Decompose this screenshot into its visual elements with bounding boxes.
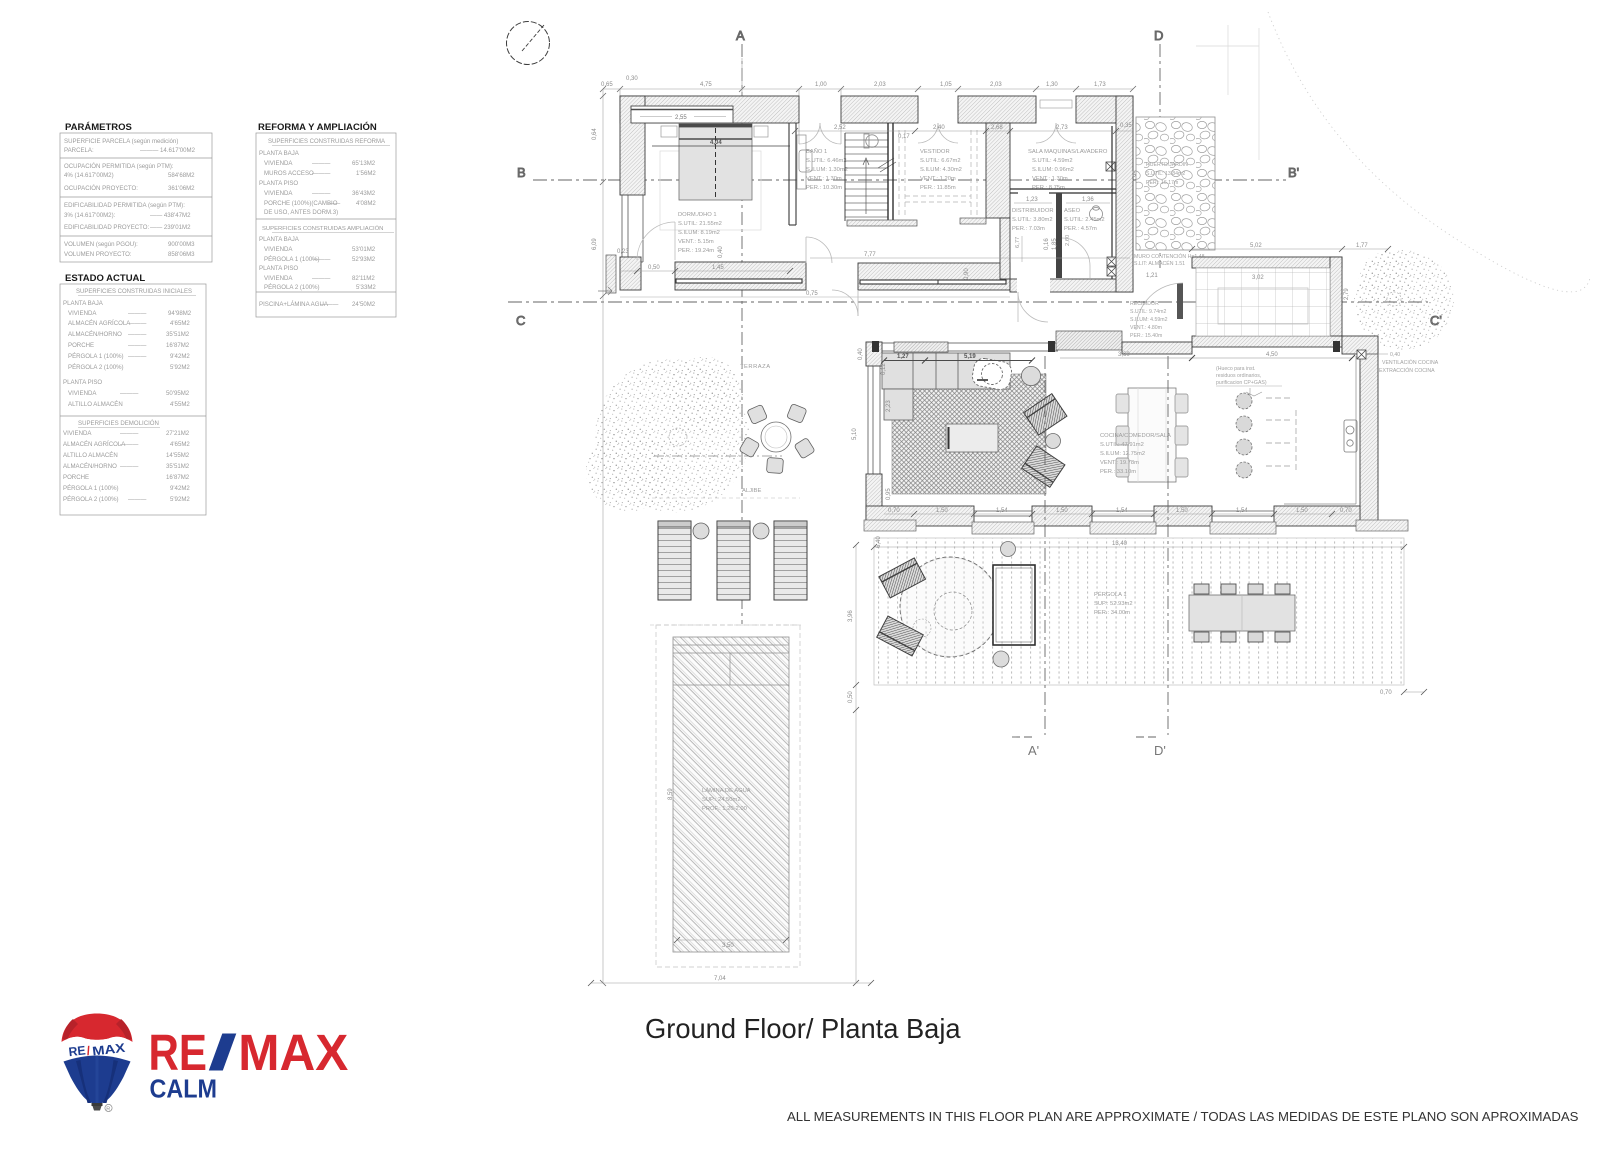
svg-text:1'56M2: 1'56M2 — [356, 170, 376, 177]
svg-text:S.UTIL: 9.74m2: S.UTIL: 9.74m2 — [1130, 309, 1166, 315]
svg-text:PER.: 34.00m: PER.: 34.00m — [1094, 610, 1130, 616]
svg-text:VENT.: 19.78m: VENT.: 19.78m — [1100, 460, 1139, 466]
svg-text:PARÁMETROS: PARÁMETROS — [65, 122, 132, 133]
svg-text:———: ——— — [312, 160, 331, 167]
svg-text:9'42M2: 9'42M2 — [170, 353, 190, 360]
svg-text:ASEO: ASEO — [1064, 208, 1081, 214]
svg-text:EXTRACCIÓN COCINA: EXTRACCIÓN COCINA — [1379, 367, 1435, 374]
svg-text:VIVIENDA: VIVIENDA — [264, 275, 293, 282]
svg-text:EDIFICABILIDAD PERMITIDA (segú: EDIFICABILIDAD PERMITIDA (según PTM): — [64, 202, 185, 209]
svg-text:C: C — [516, 313, 525, 328]
svg-text:PER.: 7.03m: PER.: 7.03m — [1012, 226, 1045, 232]
svg-text:EDIFICABILIDAD PROYECTO:: EDIFICABILIDAD PROYECTO: — [64, 224, 150, 231]
svg-text:65'13M2: 65'13M2 — [352, 160, 376, 167]
svg-text:COCINA/COMEDOR/SALA: COCINA/COMEDOR/SALA — [1100, 433, 1171, 439]
svg-text:purificacion CP+GAS): purificacion CP+GAS) — [1216, 380, 1267, 386]
svg-text:1,54: 1,54 — [996, 508, 1008, 514]
svg-text:HUERTO/JARDIN: HUERTO/JARDIN — [1146, 162, 1188, 168]
svg-text:MAX: MAX — [238, 1024, 348, 1081]
svg-text:S.UTIL: 47.91m2: S.UTIL: 47.91m2 — [1100, 442, 1144, 448]
svg-text:DISTRIBUIDOR: DISTRIBUIDOR — [1012, 208, 1054, 214]
svg-text:PÉRGOLA 2 (100%): PÉRGOLA 2 (100%) — [68, 364, 124, 371]
svg-text:1,27: 1,27 — [897, 354, 909, 360]
svg-text:4'65M2: 4'65M2 — [170, 441, 190, 448]
svg-text:———: ——— — [120, 441, 139, 448]
svg-text:3,02: 3,02 — [1252, 275, 1264, 281]
svg-text:0,70: 0,70 — [1380, 690, 1392, 696]
svg-text:900'00M3: 900'00M3 — [168, 241, 195, 248]
svg-text:PLANTA PISO: PLANTA PISO — [63, 379, 102, 386]
svg-text:A': A' — [1028, 743, 1039, 758]
svg-text:4,50: 4,50 — [1266, 352, 1278, 358]
svg-text:PÉRGOLA 1: PÉRGOLA 1 — [1094, 591, 1127, 598]
svg-text:ALMACÉN/HORNO: ALMACÉN/HORNO — [63, 463, 117, 470]
svg-text:52'93M2: 52'93M2 — [352, 256, 376, 263]
svg-text:2,79: 2,79 — [1344, 288, 1350, 300]
svg-text:50'95M2: 50'95M2 — [166, 390, 190, 397]
svg-text:5'33M2: 5'33M2 — [356, 284, 376, 291]
svg-text:BAÑO 1: BAÑO 1 — [806, 148, 827, 155]
svg-text:A: A — [736, 28, 745, 43]
svg-text:PLANTA BAJA: PLANTA BAJA — [259, 236, 300, 243]
svg-text:5'92M2: 5'92M2 — [170, 496, 190, 503]
svg-text:———: ——— — [120, 390, 139, 397]
svg-text:VESTIDOR: VESTIDOR — [920, 149, 950, 155]
svg-text:2,23: 2,23 — [886, 400, 892, 412]
svg-text:14'55M2: 14'55M2 — [166, 452, 190, 459]
svg-text:6,09: 6,09 — [592, 238, 598, 250]
svg-text:1,05: 1,05 — [940, 82, 952, 88]
svg-text:B: B — [517, 165, 526, 180]
svg-text:1,85: 1,85 — [1052, 238, 1058, 250]
svg-text:36'43M2: 36'43M2 — [352, 190, 376, 197]
svg-text:VIVIENDA: VIVIENDA — [68, 390, 97, 397]
svg-text:ALMACÉN AGRÍCOLA: ALMACÉN AGRÍCOLA — [68, 320, 131, 327]
svg-text:PER.: 15.40m: PER.: 15.40m — [1130, 333, 1162, 339]
svg-text:———: ——— — [128, 310, 147, 317]
svg-text:SUPERFICIES CONSTRUIDAS REFORM: SUPERFICIES CONSTRUIDAS REFORMA — [268, 139, 385, 145]
svg-text:———: ——— — [128, 496, 147, 503]
svg-text:0,75: 0,75 — [806, 291, 818, 297]
svg-text:S.UTIL: 6.67m2: S.UTIL: 6.67m2 — [920, 158, 961, 164]
svg-text:Ground Floor/ Planta Baja: Ground Floor/ Planta Baja — [645, 1013, 961, 1044]
svg-text:VIVIENDA: VIVIENDA — [264, 160, 293, 167]
svg-text:2,60: 2,60 — [1065, 235, 1071, 246]
svg-text:24'50M2: 24'50M2 — [352, 301, 376, 308]
svg-text:13,40: 13,40 — [1112, 541, 1128, 547]
svg-text:——: —— — [328, 200, 341, 207]
svg-text:1,30: 1,30 — [1046, 82, 1058, 88]
svg-text:ALL MEASUREMENTS IN THIS FLOOR: ALL MEASUREMENTS IN THIS FLOOR PLAN ARE … — [787, 1109, 1579, 1124]
svg-text:1,73: 1,73 — [1094, 82, 1106, 88]
svg-text:VIVIENDA: VIVIENDA — [63, 430, 92, 437]
svg-text:0,16: 0,16 — [1044, 238, 1050, 250]
svg-text:———: ——— — [312, 275, 331, 282]
svg-text:4,04: 4,04 — [710, 140, 722, 146]
svg-text:S.UTIL: 3.80m2: S.UTIL: 3.80m2 — [1012, 217, 1053, 223]
svg-text:PER.: 4.57m: PER.: 4.57m — [1064, 226, 1097, 232]
svg-text:S.UTIL: 4.59m2: S.UTIL: 4.59m2 — [1032, 158, 1073, 164]
svg-text:0,12: 0,12 — [881, 363, 887, 375]
svg-text:2,55: 2,55 — [675, 115, 687, 121]
svg-text:0,40: 0,40 — [1390, 352, 1400, 358]
svg-text:0,40: 0,40 — [718, 246, 724, 258]
svg-text:S.UTIL: 21.55m2: S.UTIL: 21.55m2 — [678, 221, 722, 227]
svg-text:R: R — [106, 1107, 110, 1113]
svg-text:5,19: 5,19 — [964, 354, 976, 360]
svg-text:0,70: 0,70 — [1340, 508, 1352, 514]
svg-text:S.ILUM: 1.30m2: S.ILUM: 1.30m2 — [806, 167, 848, 173]
svg-text:1,54: 1,54 — [1116, 508, 1128, 514]
svg-text:VENT.: 1.30m: VENT.: 1.30m — [806, 176, 842, 182]
svg-text:4,75: 4,75 — [700, 82, 712, 88]
svg-text:———: ——— — [320, 301, 339, 308]
svg-text:———: ——— — [312, 170, 331, 177]
svg-text:———: ——— — [312, 256, 331, 263]
svg-text:3,96: 3,96 — [848, 610, 854, 622]
svg-text:VENTILACIÓN COCINA: VENTILACIÓN COCINA — [1382, 359, 1439, 366]
svg-text:———: ——— — [128, 320, 147, 327]
svg-text:0,65: 0,65 — [601, 82, 613, 88]
svg-text:(Hueco para inst.: (Hueco para inst. — [1216, 366, 1256, 372]
svg-text:2,40: 2,40 — [933, 125, 945, 131]
svg-text:4'65M2: 4'65M2 — [170, 320, 190, 327]
svg-text:LÁMINA DE AGUA: LÁMINA DE AGUA — [702, 787, 751, 794]
svg-text:584'68M2: 584'68M2 — [168, 172, 195, 179]
svg-text:S.ILUM: 12.75m2: S.ILUM: 12.75m2 — [1100, 451, 1145, 457]
svg-text:PORCHE (100%)(CAMBIO: PORCHE (100%)(CAMBIO — [264, 200, 338, 207]
svg-text:2,03: 2,03 — [874, 82, 886, 88]
svg-text:5'92M2: 5'92M2 — [170, 364, 190, 371]
svg-text:———: ——— — [128, 342, 147, 349]
svg-text:5,10: 5,10 — [852, 428, 858, 440]
svg-text:——— 14.617'00M2: ——— 14.617'00M2 — [140, 147, 196, 154]
svg-text:1,77: 1,77 — [1356, 243, 1368, 249]
svg-text:16'87M2: 16'87M2 — [166, 342, 190, 349]
svg-text:3,60: 3,60 — [1118, 352, 1130, 358]
svg-text:PER.: 19.24m: PER.: 19.24m — [678, 248, 714, 254]
svg-text:3,50: 3,50 — [722, 943, 734, 949]
svg-text:DE USO, ANTES DORM.3): DE USO, ANTES DORM.3) — [264, 209, 338, 216]
svg-text:VOLUMEN PROYECTO:: VOLUMEN PROYECTO: — [64, 251, 132, 258]
svg-text:0,30: 0,30 — [626, 76, 638, 82]
svg-text:1,50: 1,50 — [936, 508, 948, 514]
svg-text:S.UTIL: 6.46m2: S.UTIL: 6.46m2 — [806, 158, 847, 164]
svg-text:S.ILUM: 8.19m2: S.ILUM: 8.19m2 — [678, 230, 720, 236]
svg-text:S.UTIL: 2.45m2: S.UTIL: 2.45m2 — [1064, 217, 1105, 223]
svg-text:0,90: 0,90 — [964, 268, 970, 280]
svg-text:3% (14.617'00M2):: 3% (14.617'00M2): — [64, 212, 116, 219]
svg-text:ALMACÉN AGRÍCOLA: ALMACÉN AGRÍCOLA — [63, 441, 126, 448]
svg-text:PÉRGOLA 1 (100%): PÉRGOLA 1 (100%) — [68, 353, 124, 360]
svg-text:TERRAZA: TERRAZA — [740, 364, 771, 370]
svg-text:1,50: 1,50 — [1056, 508, 1068, 514]
svg-text:0,70: 0,70 — [888, 508, 900, 514]
svg-text:8,59: 8,59 — [668, 788, 674, 800]
svg-text:S.ILUM: 0.96m2: S.ILUM: 0.96m2 — [1032, 167, 1074, 173]
svg-text:OCUPACIÓN PROYECTO:: OCUPACIÓN PROYECTO: — [64, 185, 138, 192]
svg-text:ALTILLO ALMACÉN: ALTILLO ALMACÉN — [68, 401, 123, 408]
svg-text:4'08M2: 4'08M2 — [356, 200, 376, 207]
svg-text:VIVIENDA: VIVIENDA — [68, 310, 97, 317]
svg-text:PÉRGOLA 2 (100%): PÉRGOLA 2 (100%) — [63, 496, 119, 503]
svg-text:4% (14.617'00M2): 4% (14.617'00M2) — [64, 172, 114, 179]
svg-text:S.UTIL: 13.84m2: S.UTIL: 13.84m2 — [1146, 171, 1185, 177]
svg-text:RE: RE — [149, 1024, 208, 1081]
svg-text:16'87M2: 16'87M2 — [166, 474, 190, 481]
svg-text:———: ——— — [128, 353, 147, 360]
svg-text:PER.: 11.85m: PER.: 11.85m — [920, 185, 956, 191]
svg-text:D: D — [1154, 28, 1163, 43]
svg-text:7,77: 7,77 — [864, 252, 876, 258]
svg-text:———: ——— — [128, 331, 147, 338]
svg-text:0,50: 0,50 — [848, 691, 854, 703]
svg-text:MUROS ACCESO: MUROS ACCESO — [264, 170, 314, 177]
svg-text:SUPERFICIE PARCELA (según medi: SUPERFICIE PARCELA (según medición) — [64, 138, 178, 145]
svg-text:—— 239'01M2: —— 239'01M2 — [150, 224, 191, 231]
svg-text:SUP.: 24.50m2: SUP.: 24.50m2 — [702, 797, 741, 803]
svg-text:1,21: 1,21 — [1146, 273, 1158, 279]
svg-text:6,77: 6,77 — [1015, 237, 1021, 248]
svg-text:VENT.: 1.30m: VENT.: 1.30m — [1032, 176, 1068, 182]
svg-text:SUP.: 52.93m2: SUP.: 52.93m2 — [1094, 601, 1133, 607]
svg-text:2,52: 2,52 — [834, 125, 846, 131]
svg-text:VIVIENDA: VIVIENDA — [264, 190, 293, 197]
svg-text:—— 438'47M2: —— 438'47M2 — [150, 212, 191, 219]
svg-text:———: ——— — [312, 190, 331, 197]
svg-text:PLANTA PISO: PLANTA PISO — [259, 265, 298, 272]
svg-text:SUPERFICIES DEMOLICIÓN: SUPERFICIES DEMOLICIÓN — [78, 420, 159, 427]
svg-text:PÉRGOLA 1 (100%): PÉRGOLA 1 (100%) — [63, 485, 119, 492]
svg-text:PLANTA BAJA: PLANTA BAJA — [259, 150, 300, 157]
svg-text:0,35: 0,35 — [1120, 123, 1132, 129]
svg-text:residuos ordinarios,: residuos ordinarios, — [1216, 373, 1261, 379]
svg-text:1,45: 1,45 — [712, 265, 724, 271]
svg-text:0,23: 0,23 — [617, 249, 629, 255]
svg-text:1,23: 1,23 — [1026, 197, 1038, 203]
svg-text:0,40: 0,40 — [858, 348, 864, 360]
svg-text:———: ——— — [120, 430, 139, 437]
svg-text:2,03: 2,03 — [990, 82, 1002, 88]
svg-text:PER.: 10.30m: PER.: 10.30m — [806, 185, 842, 191]
svg-text:361'06M2: 361'06M2 — [168, 185, 195, 192]
svg-text:REFORMA Y AMPLIACIÓN: REFORMA Y AMPLIACIÓN — [258, 121, 377, 133]
svg-text:PER.: 16.17m: PER.: 16.17m — [1146, 180, 1178, 186]
svg-text:PER.: 33.10m: PER.: 33.10m — [1100, 469, 1136, 475]
svg-text:6,40: 6,40 — [876, 536, 882, 548]
svg-text:ALJIBE: ALJIBE — [742, 488, 761, 494]
svg-text:RECIBIDOR: RECIBIDOR — [1130, 301, 1159, 307]
svg-text:PER.: 8.75m: PER.: 8.75m — [1032, 185, 1065, 191]
svg-text:VENT.: 5.15m: VENT.: 5.15m — [678, 239, 714, 245]
svg-text:PLANTA BAJA: PLANTA BAJA — [63, 300, 104, 307]
svg-text:S.ILUM: 4.59m2: S.ILUM: 4.59m2 — [1130, 317, 1168, 323]
svg-text:OCUPACIÓN PERMITIDA (según PTM: OCUPACIÓN PERMITIDA (según PTM): — [64, 163, 174, 170]
svg-text:DORM./DHO 1: DORM./DHO 1 — [678, 212, 717, 218]
svg-text:ALTILLO ALMACÉN: ALTILLO ALMACÉN — [63, 452, 118, 459]
svg-text:4'55M2: 4'55M2 — [170, 401, 190, 408]
svg-text:0,95: 0,95 — [886, 488, 892, 500]
svg-text:PORCHE: PORCHE — [63, 474, 89, 481]
svg-text:2,68: 2,68 — [991, 125, 1003, 131]
svg-text:D': D' — [1154, 743, 1166, 758]
svg-text:ESTADO ACTUAL: ESTADO ACTUAL — [65, 273, 145, 284]
svg-text:VENT.: 1.20m: VENT.: 1.20m — [920, 176, 956, 182]
svg-text:RE: RE — [68, 1043, 86, 1059]
svg-text:27'21M2: 27'21M2 — [166, 430, 190, 437]
svg-text:858'06M3: 858'06M3 — [168, 251, 195, 258]
svg-text:0,50: 0,50 — [648, 265, 660, 271]
svg-text:S.ILUM: 4.30m2: S.ILUM: 4.30m2 — [920, 167, 962, 173]
svg-text:SUPERFICIES CONSTRUIDAS AMPLIA: SUPERFICIES CONSTRUIDAS AMPLIACIÓN — [262, 225, 383, 232]
svg-text:PORCHE: PORCHE — [68, 342, 94, 349]
svg-text:35'51M2: 35'51M2 — [166, 331, 190, 338]
svg-text:ALMACÉN/HORNO: ALMACÉN/HORNO — [68, 331, 122, 338]
svg-text:7,04: 7,04 — [714, 976, 726, 982]
svg-text:VIVIENDA: VIVIENDA — [264, 246, 293, 253]
svg-text:94'98M2: 94'98M2 — [168, 310, 192, 317]
svg-text:B': B' — [1288, 165, 1299, 180]
svg-text:82'11M2: 82'11M2 — [352, 275, 375, 282]
svg-text:0,64: 0,64 — [592, 128, 598, 140]
svg-text:1,36: 1,36 — [1082, 197, 1094, 203]
svg-text:VENT.: 4.80m: VENT.: 4.80m — [1130, 325, 1162, 331]
svg-text:5,02: 5,02 — [1250, 243, 1262, 249]
svg-text:VOLUMEN (según PGOU):: VOLUMEN (según PGOU): — [64, 241, 138, 248]
svg-text:9'42M2: 9'42M2 — [170, 485, 190, 492]
svg-text:0,17: 0,17 — [898, 134, 910, 140]
svg-text:PROF.: 1.20-2.00: PROF.: 1.20-2.00 — [702, 806, 747, 812]
svg-text:1,00: 1,00 — [815, 82, 827, 88]
svg-text:SUPERFICIES CONSTRUIDAS INICIA: SUPERFICIES CONSTRUIDAS INICIALES — [76, 289, 192, 295]
svg-text:1,50: 1,50 — [1176, 508, 1188, 514]
svg-text:SALA MAQUINAS/LAVADERO: SALA MAQUINAS/LAVADERO — [1028, 149, 1108, 155]
svg-text:2,73: 2,73 — [1056, 125, 1068, 131]
svg-text:PLANTA PISO: PLANTA PISO — [259, 180, 298, 187]
svg-text:1,50: 1,50 — [1296, 508, 1308, 514]
svg-text:PISCINA+LÁMINA AGUA: PISCINA+LÁMINA AGUA — [259, 301, 329, 308]
svg-text:35'51M2: 35'51M2 — [166, 463, 190, 470]
svg-text:1,54: 1,54 — [1236, 508, 1248, 514]
svg-text:53'01M2: 53'01M2 — [352, 246, 376, 253]
svg-text:———: ——— — [120, 463, 139, 470]
svg-text:S.LIT: ALMACÉN 1.51: S.LIT: ALMACÉN 1.51 — [1134, 260, 1185, 267]
svg-text:PARCELA:: PARCELA: — [64, 147, 94, 154]
svg-text:CALM: CALM — [150, 1074, 218, 1104]
svg-text:PÉRGOLA 2 (100%): PÉRGOLA 2 (100%) — [264, 284, 320, 291]
